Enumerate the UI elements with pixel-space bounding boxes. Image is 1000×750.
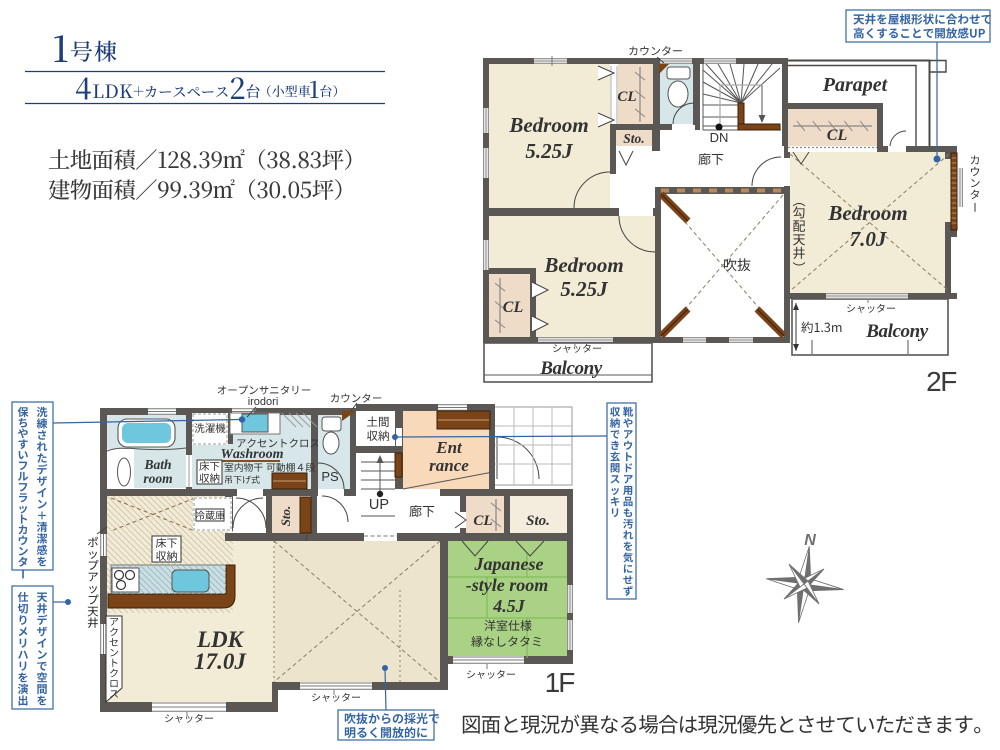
- svg-text:17.0J: 17.0J: [194, 649, 247, 674]
- svg-text:4.5J: 4.5J: [492, 596, 526, 616]
- svg-text:Ent: Ent: [435, 438, 463, 457]
- svg-text:2F: 2F: [926, 366, 956, 397]
- svg-text:CL: CL: [617, 89, 636, 105]
- svg-text:Parapet: Parapet: [822, 74, 889, 96]
- svg-text:Sto.: Sto.: [278, 506, 293, 527]
- svg-text:1F: 1F: [545, 667, 575, 698]
- svg-text:UP: UP: [369, 497, 389, 513]
- svg-text:N: N: [804, 532, 816, 549]
- svg-text:Sto.: Sto.: [526, 513, 550, 529]
- svg-text:5.25J: 5.25J: [525, 139, 574, 163]
- svg-text:CL: CL: [503, 299, 524, 316]
- svg-text:Balcony: Balcony: [865, 321, 929, 342]
- svg-text:Bedroom: Bedroom: [543, 253, 623, 277]
- svg-text:Bath: Bath: [143, 457, 171, 472]
- svg-text:Bedroom: Bedroom: [508, 113, 588, 137]
- svg-text:7.0J: 7.0J: [850, 227, 888, 251]
- svg-text:irodori: irodori: [248, 396, 279, 408]
- svg-text:Balcony: Balcony: [539, 358, 603, 379]
- svg-text:rance: rance: [429, 456, 469, 475]
- svg-text:Bedroom: Bedroom: [827, 201, 907, 225]
- svg-text:Sto.: Sto.: [623, 131, 644, 146]
- svg-text:-style room: -style room: [466, 575, 549, 595]
- svg-text:DN: DN: [710, 130, 729, 145]
- svg-text:Washroom: Washroom: [220, 447, 283, 462]
- svg-text:5.25J: 5.25J: [560, 277, 609, 301]
- svg-text:CL: CL: [473, 513, 492, 529]
- svg-text:CL: CL: [827, 127, 848, 144]
- svg-text:room: room: [143, 471, 172, 486]
- svg-text:Japanese: Japanese: [474, 554, 544, 574]
